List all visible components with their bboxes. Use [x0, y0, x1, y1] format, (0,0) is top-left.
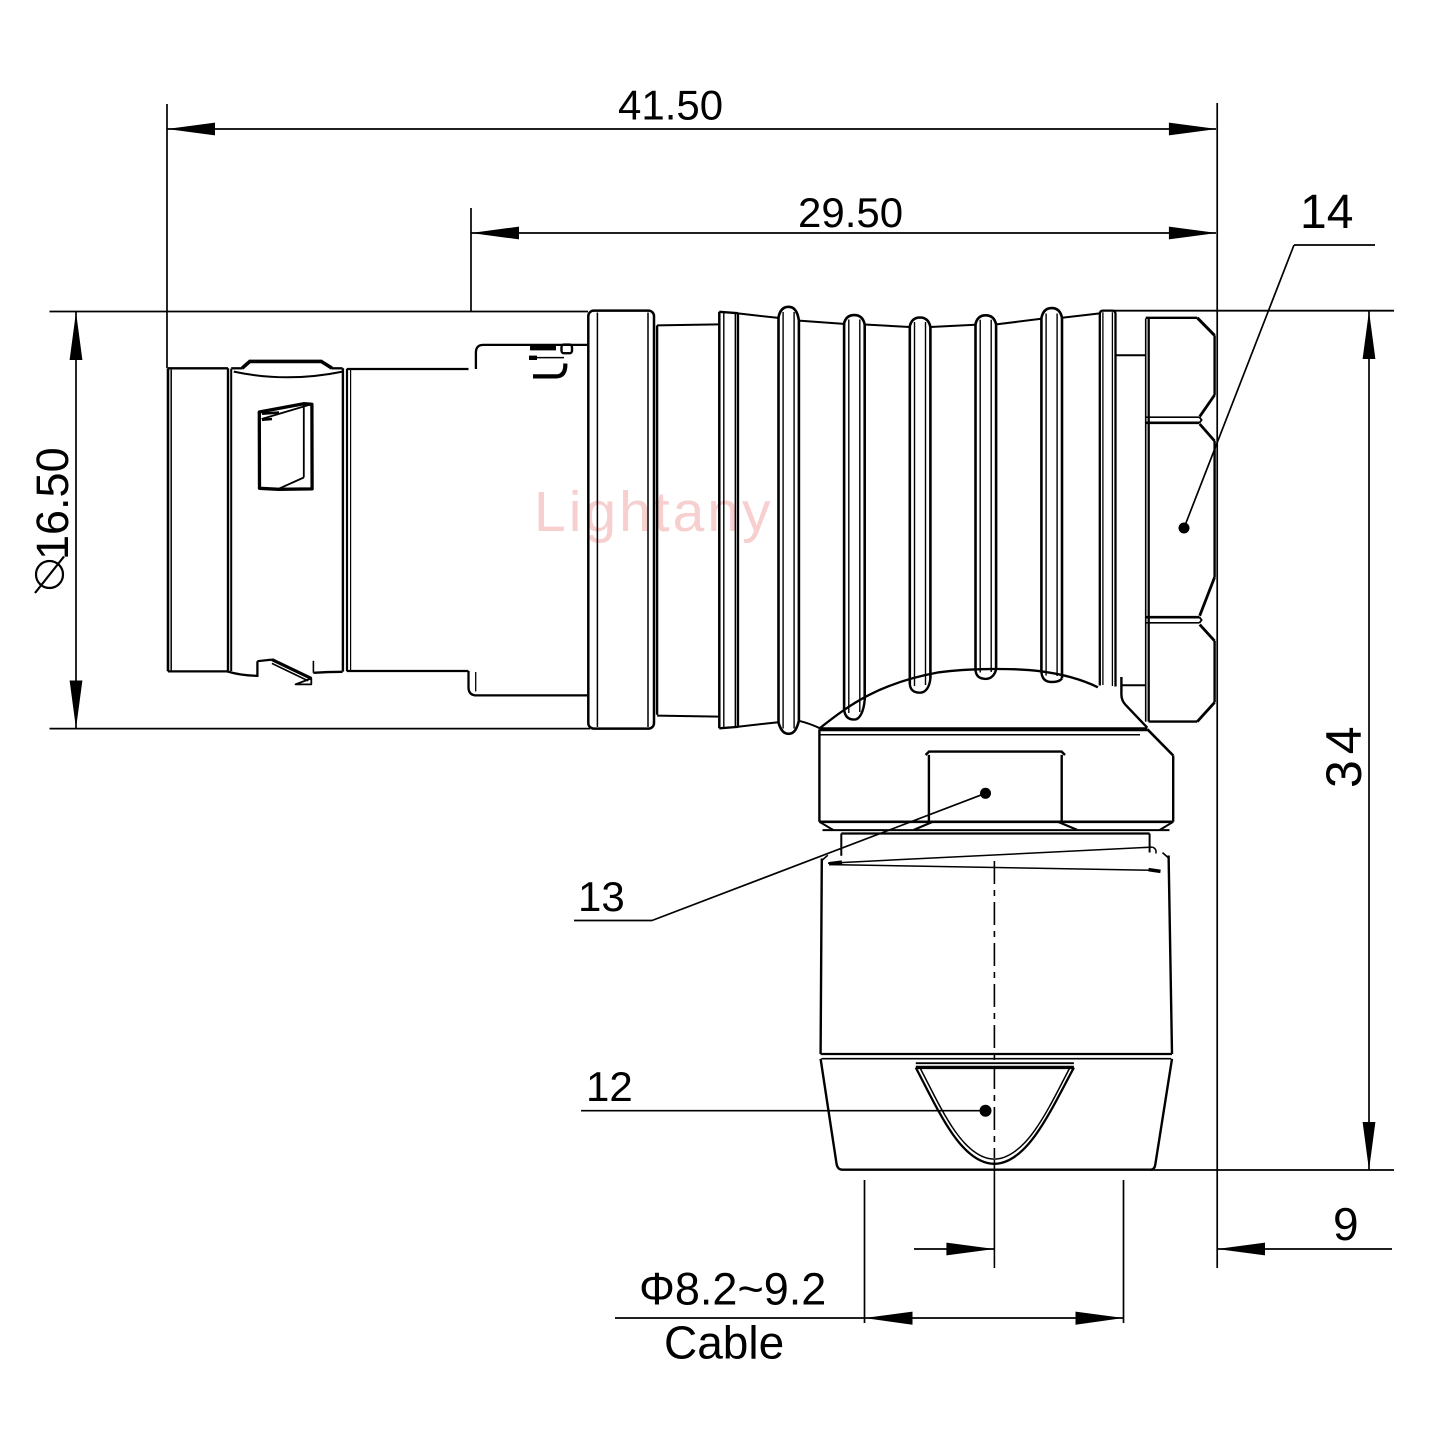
svg-text:29.50: 29.50: [798, 189, 903, 236]
svg-text:14: 14: [1300, 186, 1353, 239]
svg-text:41.50: 41.50: [618, 82, 723, 129]
svg-text:9: 9: [1333, 1198, 1359, 1250]
svg-text:16.50: 16.50: [27, 447, 78, 560]
svg-text:Cable: Cable: [664, 1317, 784, 1369]
svg-text:Φ8.2~9.2: Φ8.2~9.2: [639, 1264, 826, 1315]
svg-text:34: 34: [1316, 720, 1372, 788]
svg-text:13: 13: [578, 873, 625, 920]
svg-text:12: 12: [586, 1063, 633, 1110]
